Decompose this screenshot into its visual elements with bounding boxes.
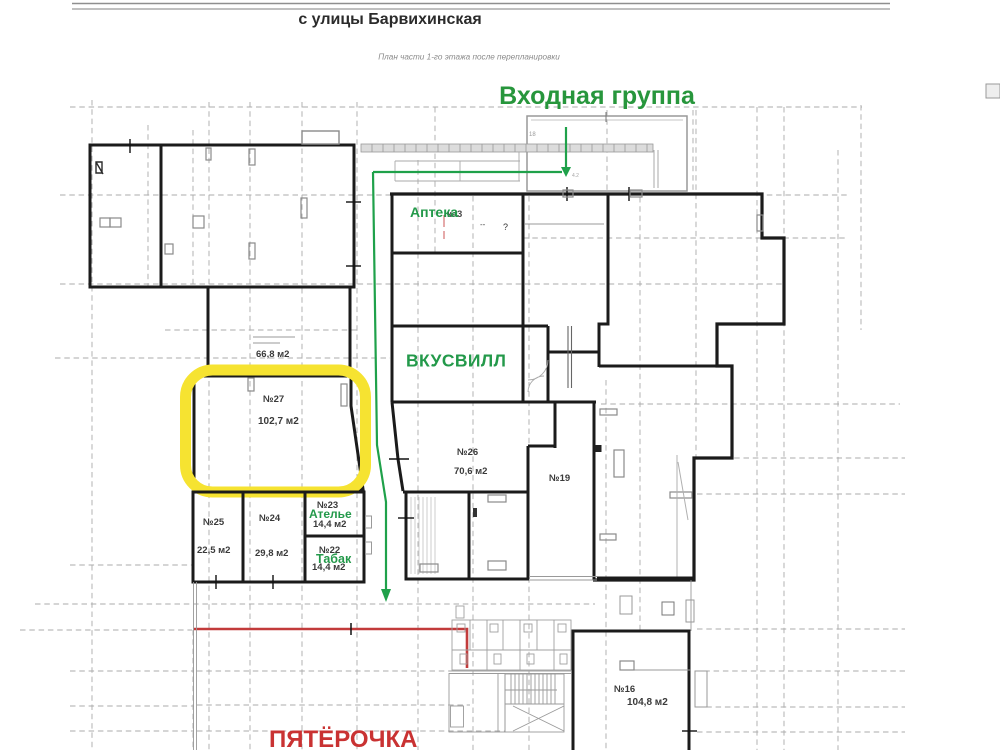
- svg-text:14,4 м2: 14,4 м2: [313, 519, 346, 530]
- svg-text:№19: №19: [549, 473, 570, 484]
- svg-text:ВКУСВИЛЛ: ВКУСВИЛЛ: [406, 351, 506, 371]
- svg-text:№26: №26: [457, 447, 478, 458]
- svg-text:29,8 м2: 29,8 м2: [255, 548, 288, 559]
- svg-text:Входная группа: Входная группа: [499, 82, 696, 110]
- svg-text:№16: №16: [614, 684, 635, 695]
- svg-text:Аптека: Аптека: [410, 204, 458, 220]
- svg-text:№25: №25: [203, 517, 225, 528]
- svg-text:ПЯТЁРОЧКА: ПЯТЁРОЧКА: [269, 726, 417, 750]
- svg-text:66,8 м2: 66,8 м2: [256, 349, 289, 360]
- svg-text:22,5 м2: 22,5 м2: [197, 545, 230, 556]
- svg-text:№24: №24: [259, 513, 281, 524]
- svg-text:с улицы Барвихинская: с улицы Барвихинская: [298, 11, 481, 28]
- svg-text:70,6 м2: 70,6 м2: [454, 466, 487, 477]
- svg-text:--: --: [480, 220, 486, 229]
- svg-text:4.2: 4.2: [572, 173, 579, 179]
- svg-text:18: 18: [529, 132, 536, 138]
- svg-text:?: ?: [503, 222, 508, 232]
- svg-text:№27: №27: [263, 394, 284, 405]
- svg-text:102,7 м2: 102,7 м2: [258, 416, 299, 427]
- svg-text:104,8 м2: 104,8 м2: [627, 697, 668, 708]
- svg-text:План части 1-го этажа после пе: План части 1-го этажа после перепланиров…: [378, 53, 560, 62]
- svg-text:Табак: Табак: [316, 552, 352, 566]
